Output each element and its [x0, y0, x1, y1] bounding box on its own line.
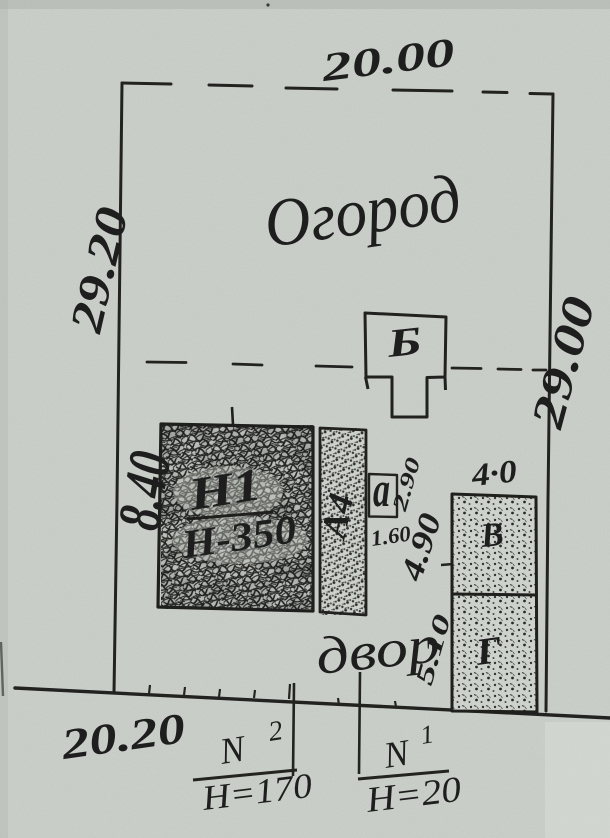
svg-text:а: а: [373, 461, 390, 517]
svg-text:4·0: 4·0: [469, 452, 519, 493]
svg-text:8.40: 8.40: [105, 446, 184, 534]
svg-text:В: В: [478, 516, 505, 555]
svg-text:Б: Б: [384, 318, 424, 366]
